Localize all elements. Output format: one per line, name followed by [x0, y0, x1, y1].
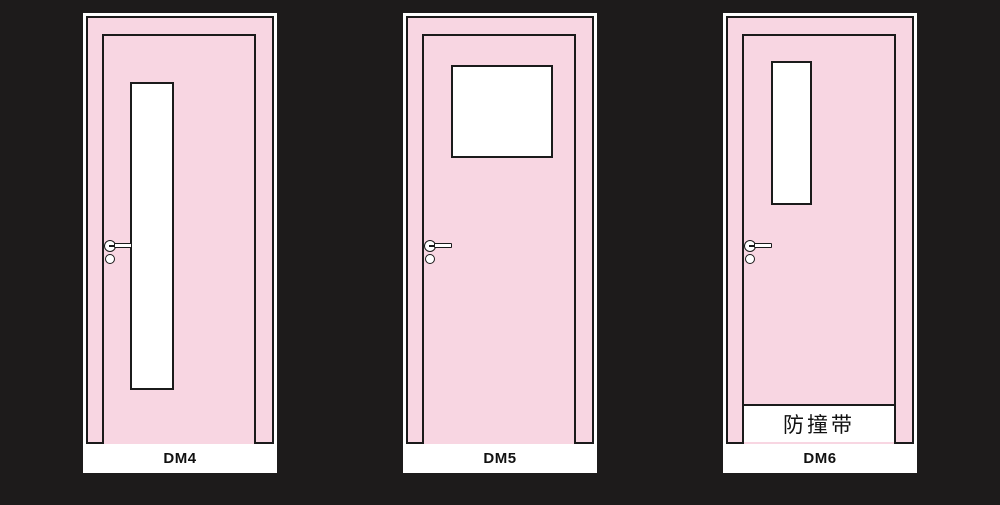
door-diagram-stage: DM4DM5防撞带DM6: [0, 0, 1000, 505]
door-leaf: [102, 34, 256, 444]
anti-collision-strip: 防撞带: [744, 404, 894, 442]
door-model-label: DM4: [163, 450, 196, 467]
vision-panel-window: [451, 65, 553, 158]
door-label-band: DM6: [723, 444, 917, 473]
door-label-band: DM4: [83, 444, 277, 473]
lock-cylinder-icon: [425, 254, 435, 264]
door-label-band: DM5: [403, 444, 597, 473]
anti-collision-strip-label: 防撞带: [783, 409, 855, 439]
door-card-dm5: DM5: [403, 13, 597, 473]
door-handle-lever-icon: [754, 243, 772, 248]
door-model-label: DM5: [483, 450, 516, 467]
door-card-dm6: 防撞带DM6: [723, 13, 917, 473]
vision-panel-window: [771, 61, 812, 205]
lock-cylinder-icon: [105, 254, 115, 264]
door-leaf: [742, 34, 896, 444]
lock-cylinder-icon: [745, 254, 755, 264]
door-card-dm4: DM4: [83, 13, 277, 473]
door-model-label: DM6: [803, 450, 836, 467]
vision-panel-window: [130, 82, 174, 390]
door-handle-lever-icon: [434, 243, 452, 248]
door-handle-lever-icon: [114, 243, 132, 248]
